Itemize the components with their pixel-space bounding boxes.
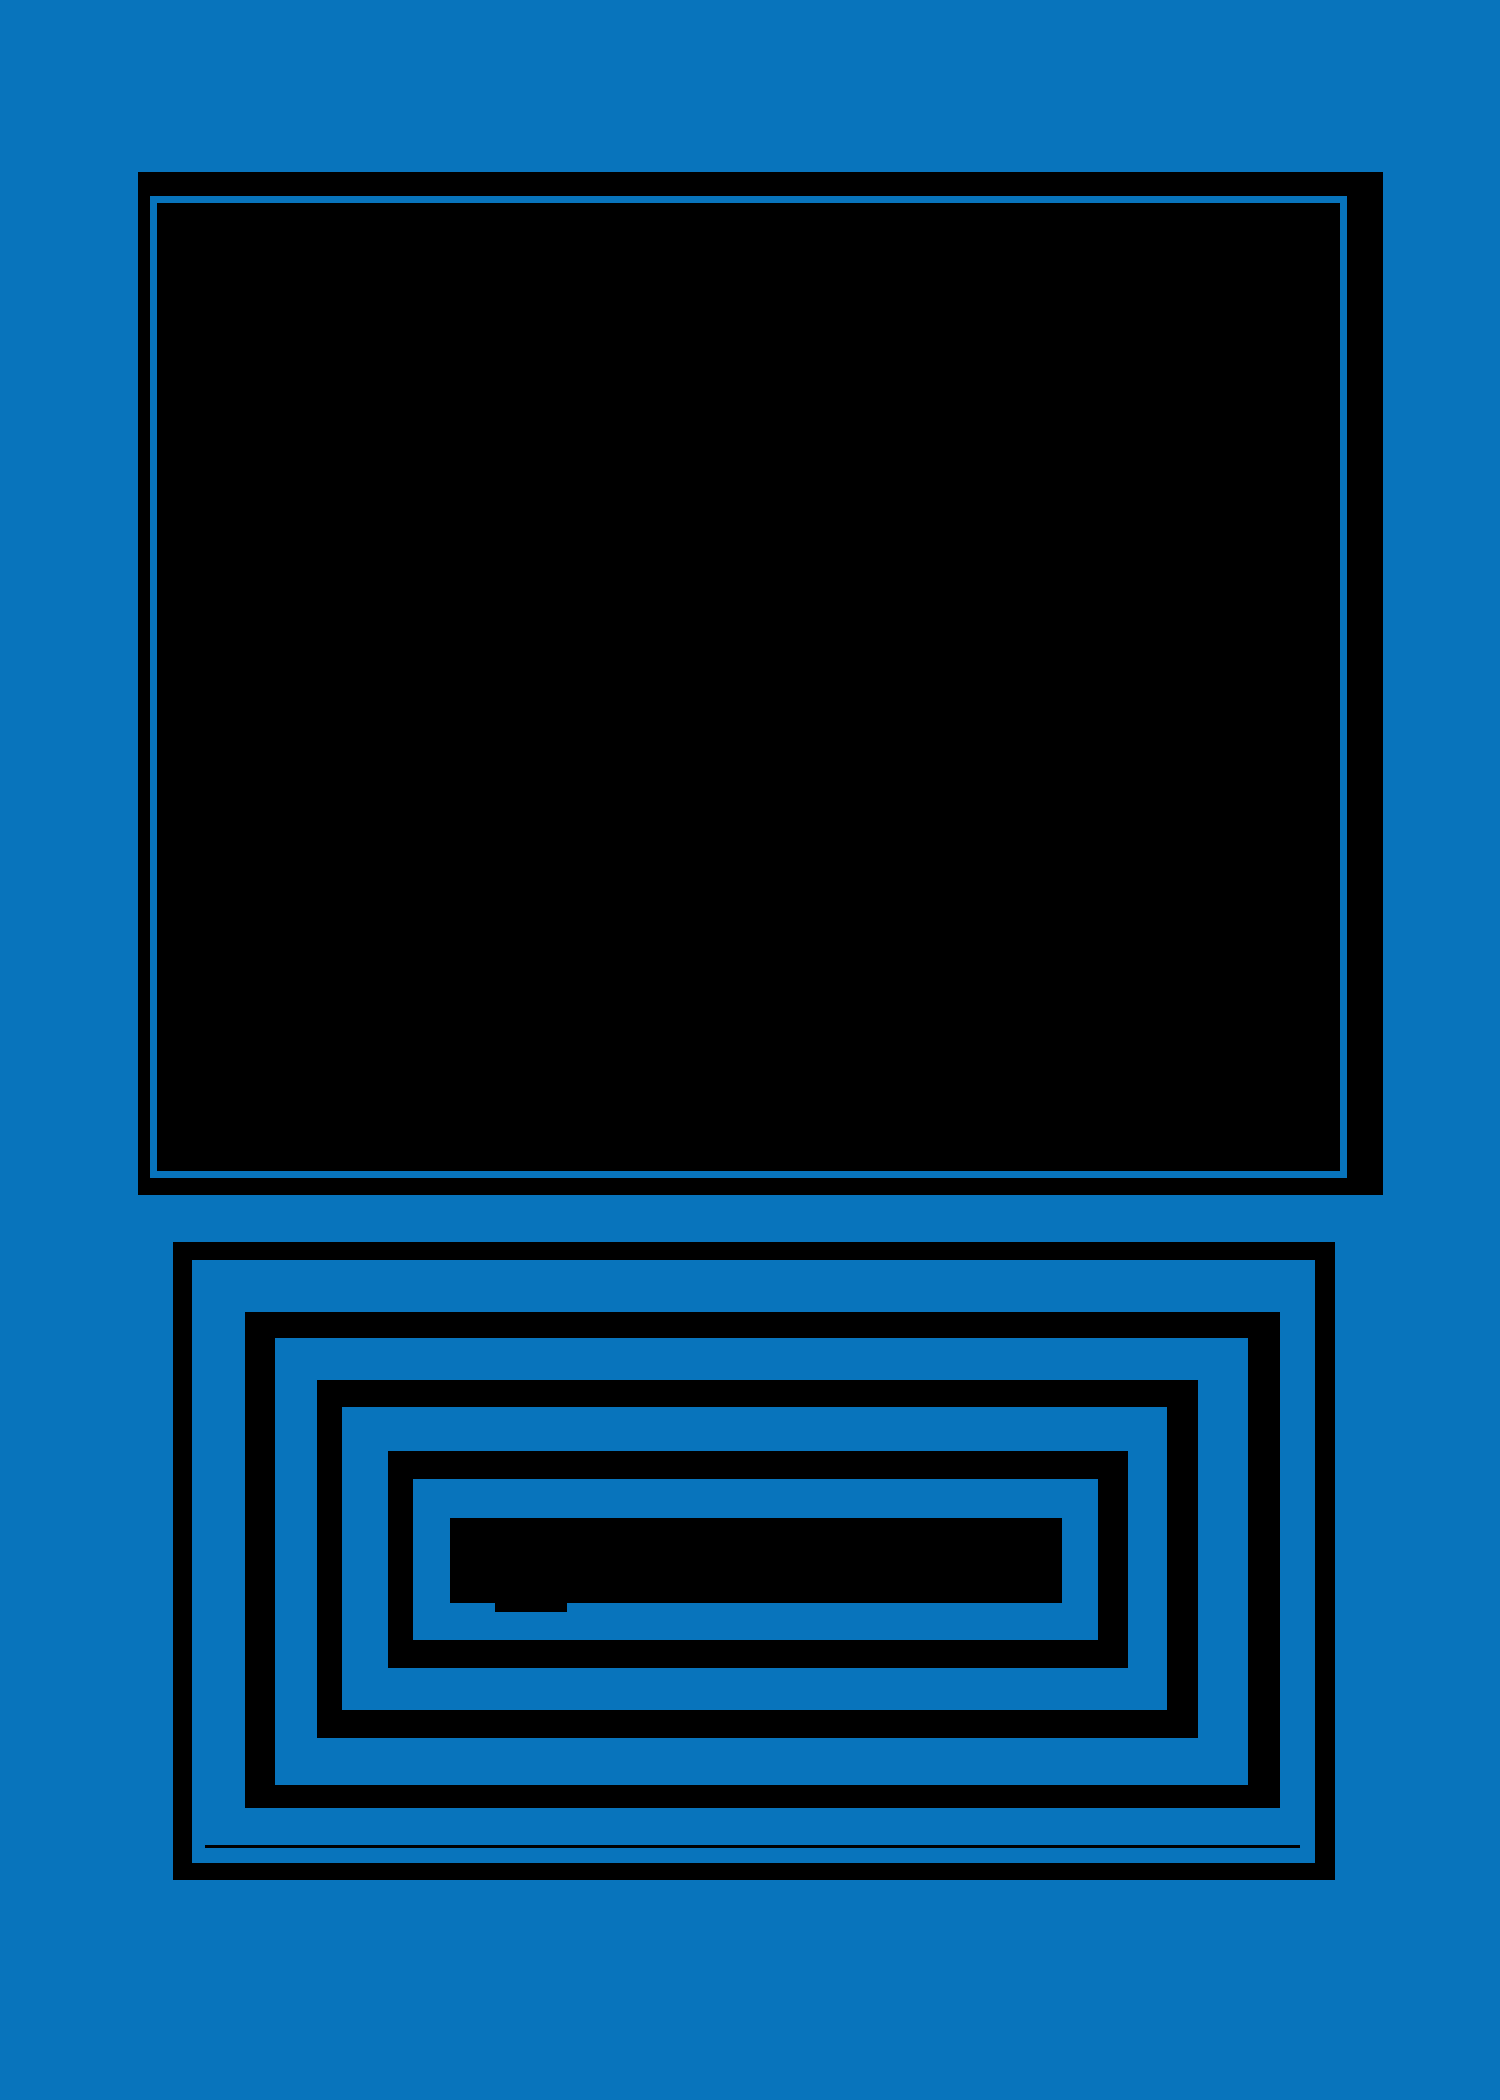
center-bar-notch [495, 1603, 567, 1612]
monitor-screen-inner-outline [150, 196, 1347, 1178]
bottom-accent-line [205, 1845, 1300, 1848]
center-bar [450, 1518, 1062, 1603]
abstract-figure [0, 0, 1500, 2100]
